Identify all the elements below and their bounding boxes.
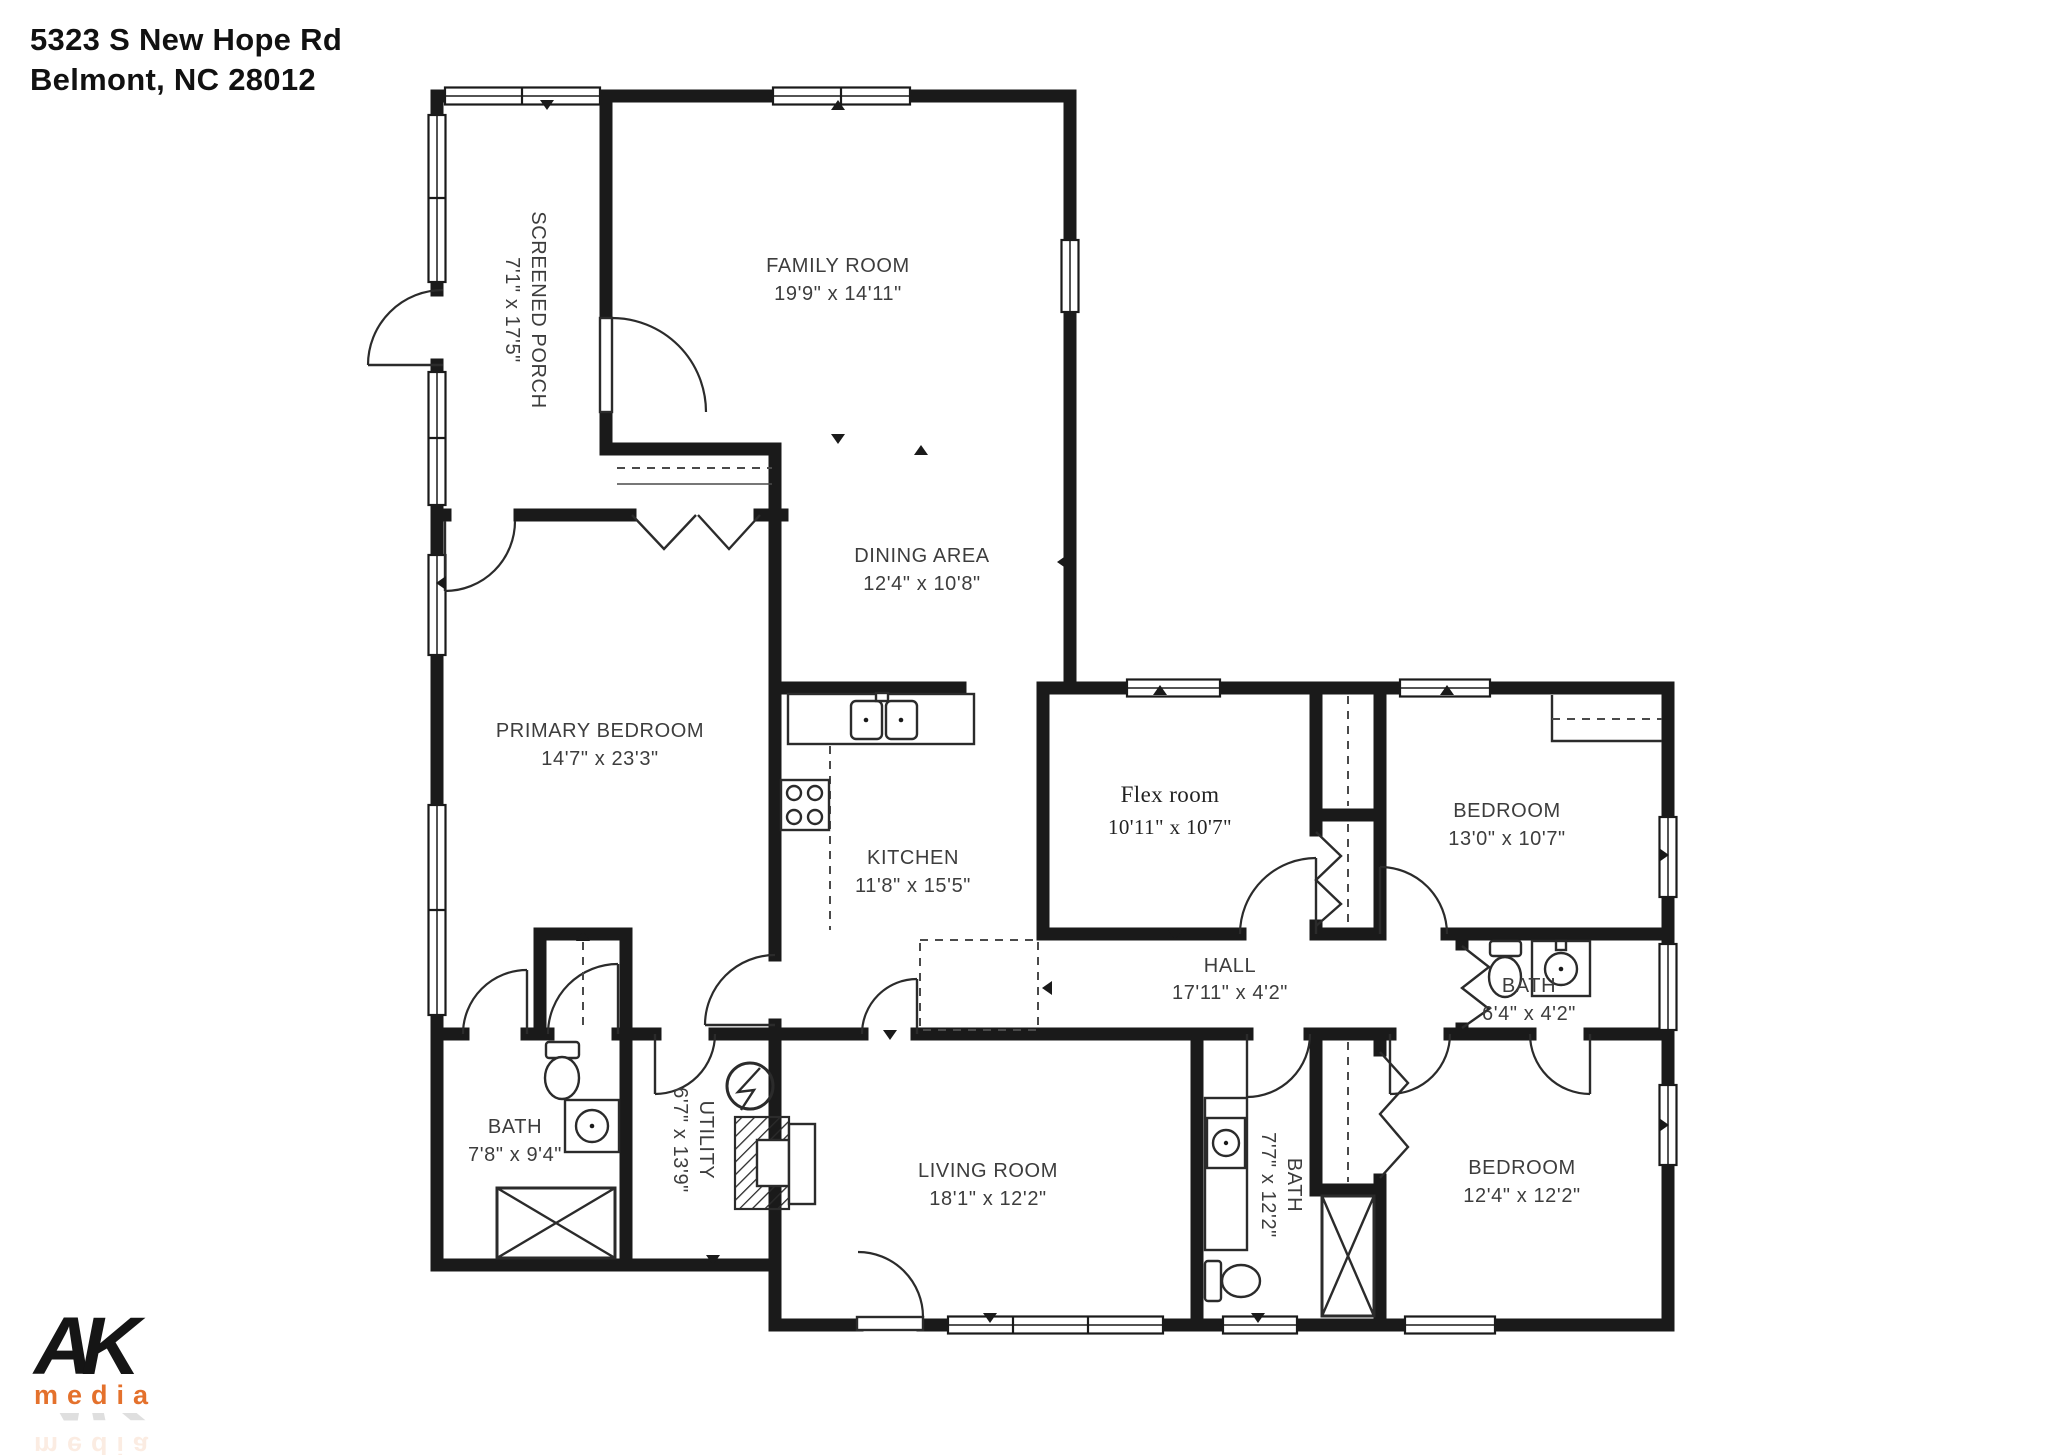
front-door — [857, 1252, 923, 1330]
window — [1660, 944, 1677, 1030]
room-label-family-room: FAMILY ROOM 19'9" x 14'11" — [766, 255, 910, 305]
room-label-bath-middle: BATH 7'7" x 12'2" — [1257, 1132, 1305, 1238]
bedroom-bottom-right-hall-door — [1390, 1034, 1450, 1094]
room-name: HALL — [1204, 955, 1256, 977]
stove — [781, 780, 829, 830]
room-name: KITCHEN — [867, 847, 959, 869]
window — [1062, 240, 1079, 312]
room-dims: 11'8" x 15'5" — [855, 875, 971, 897]
room-label-dining-area: DINING AREA 12'4" x 10'8" — [854, 545, 990, 595]
room-dims: 6'7" x 13'9" — [669, 1087, 691, 1193]
sink-vanity — [565, 1100, 619, 1152]
room-name: FAMILY ROOM — [766, 255, 910, 277]
logo-ak-text: AK — [34, 1308, 234, 1386]
window — [445, 88, 600, 105]
window — [429, 555, 446, 655]
room-name: SCREENED PORCH — [527, 211, 549, 408]
room-dims: 7'7" x 12'2" — [1257, 1132, 1279, 1238]
room-label-bath-left: BATH 7'8" x 9'4" — [468, 1116, 562, 1166]
room-name: PRIMARY BEDROOM — [496, 720, 704, 742]
logo-media-text: media — [34, 1380, 234, 1411]
window — [948, 1317, 1163, 1334]
living-room-opening-door — [862, 979, 917, 1034]
room-label-living-room: LIVING ROOM 18'1" x 12'2" — [918, 1160, 1058, 1210]
flex-closet-bifold — [1316, 832, 1341, 926]
toilet — [545, 1042, 579, 1099]
bath-middle-door — [1247, 1034, 1310, 1097]
window — [429, 805, 446, 1015]
room-dims: 10'11" x 10'7" — [1108, 815, 1232, 839]
walls — [437, 96, 1668, 1325]
room-name: Flex room — [1121, 782, 1220, 807]
room-dims: 13'0" x 10'7" — [1448, 828, 1566, 850]
fireplace — [735, 1117, 815, 1209]
room-name: BEDROOM — [1453, 800, 1561, 822]
toilet — [1205, 1261, 1260, 1301]
bedroom-corner-closet — [1552, 695, 1662, 741]
floorplan-drawing: SCREENED PORCH 7'1" x 17'5" FAMILY ROOM … — [0, 0, 2048, 1447]
bedroom-bottom-right-bath-door — [1530, 1034, 1590, 1094]
room-name: UTILITY — [695, 1101, 717, 1180]
electrical-panel — [727, 1063, 773, 1110]
room-name: BATH — [1502, 975, 1556, 997]
room-label-primary-bedroom: PRIMARY BEDROOM 14'7" x 23'3" — [496, 720, 704, 770]
room-dims: 6'4" x 4'2" — [1482, 1003, 1576, 1025]
room-label-utility: UTILITY 6'7" x 13'9" — [669, 1087, 717, 1193]
bedroom-top-right-door — [1380, 867, 1447, 934]
window — [773, 88, 910, 105]
floorplan-page: 5323 S New Hope Rd Belmont, NC 28012 — [0, 0, 2048, 1447]
room-label-bedroom-top-right: BEDROOM 13'0" x 10'7" — [1448, 800, 1566, 850]
room-dims: 17'11" x 4'2" — [1172, 982, 1288, 1004]
flex-room-door — [1240, 858, 1316, 934]
window — [1127, 680, 1220, 697]
shower — [497, 1188, 615, 1258]
bath-left-door — [463, 970, 527, 1034]
screen-window — [429, 372, 446, 505]
logo-reflection: media AK — [34, 1413, 234, 1455]
room-label-flex-room: Flex room 10'11" x 10'7" — [1108, 782, 1232, 839]
room-dims: 7'8" x 9'4" — [468, 1144, 562, 1166]
room-labels: SCREENED PORCH 7'1" x 17'5" FAMILY ROOM … — [468, 211, 1581, 1238]
room-label-screened-porch: SCREENED PORCH 7'1" x 17'5" — [501, 211, 549, 408]
closet-bifold-doors — [632, 515, 760, 549]
room-dims: 12'4" x 12'2" — [1463, 1185, 1581, 1207]
room-name: BEDROOM — [1468, 1157, 1576, 1179]
porch-family-door — [600, 318, 706, 412]
porch-primary-door — [445, 521, 515, 591]
kitchen-sink-counter — [788, 693, 974, 744]
room-name: LIVING ROOM — [918, 1160, 1058, 1182]
sink-vanity — [1205, 1098, 1247, 1250]
bedroom-closet-bifold — [1380, 1052, 1408, 1178]
room-label-bedroom-bottom-right: BEDROOM 12'4" x 12'2" — [1463, 1157, 1581, 1207]
room-name: BATH — [1283, 1158, 1305, 1212]
window — [1405, 1317, 1495, 1334]
ak-media-logo: AK media media AK — [34, 1308, 234, 1455]
room-dims: 12'4" x 10'8" — [863, 573, 981, 595]
room-label-kitchen: KITCHEN 11'8" x 15'5" — [855, 847, 971, 897]
room-dims: 18'1" x 12'2" — [929, 1188, 1047, 1210]
screen-window — [429, 115, 446, 282]
room-label-hall: HALL 17'11" x 4'2" — [1172, 955, 1288, 1004]
porch-exterior-door — [368, 290, 443, 365]
closet-rod — [617, 468, 772, 484]
room-dims: 7'1" x 17'5" — [501, 257, 523, 363]
shower — [1322, 1196, 1374, 1316]
primary-entry-door — [705, 955, 775, 1025]
room-dims: 19'9" x 14'11" — [774, 283, 902, 305]
room-name: BATH — [488, 1116, 542, 1138]
room-name: DINING AREA — [854, 545, 990, 567]
room-dims: 14'7" x 23'3" — [541, 748, 659, 770]
utility-door — [655, 1034, 715, 1094]
